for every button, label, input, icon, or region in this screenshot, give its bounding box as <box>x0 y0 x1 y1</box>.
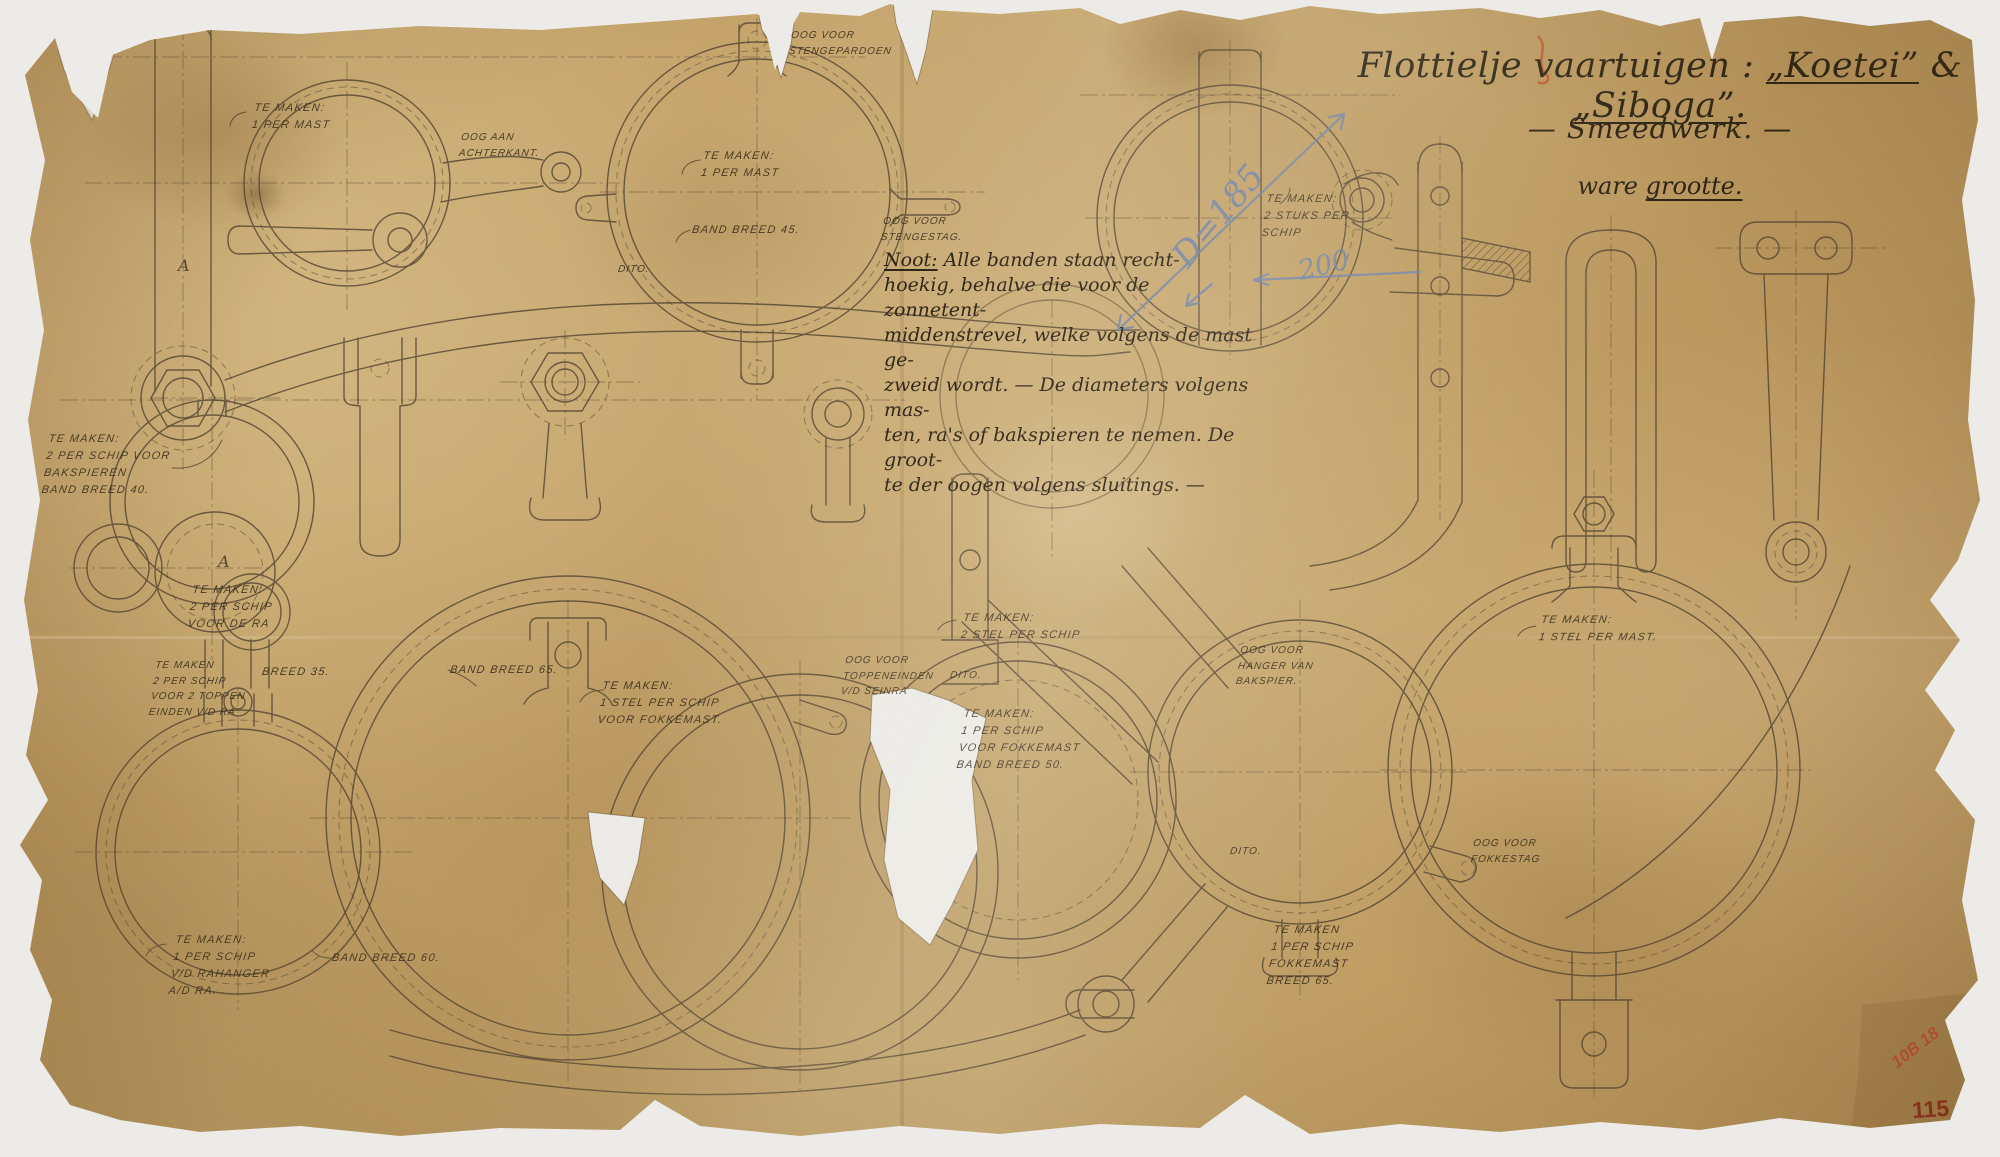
label-band40-make: TE MAKEN: 2 PER SCHIP VOOR BAKSPIEREN BA… <box>40 431 174 499</box>
note-line: hoekig, behalve die voor de zonnetent- <box>884 273 1252 323</box>
note-line: middenstrevel, welke volgens de mast ge- <box>884 323 1252 373</box>
note-line: te der oogen volgens sluitings. — <box>884 473 1252 498</box>
section-mark-a2: A <box>218 552 230 571</box>
title-joiner: & <box>1931 46 1963 86</box>
note-line: zweid wordt. — De diameters volgens mas- <box>884 373 1252 423</box>
label-ring2-make: TE MAKEN: 1 PER MAST <box>700 148 783 182</box>
drawing-scale-note: ware grootte. <box>1400 172 1920 200</box>
label-breed35: BREED 35. <box>261 664 331 681</box>
label-band60: BAND BREED 60. <box>331 950 441 967</box>
note-text: Alle banden staan recht- <box>938 249 1180 271</box>
label-ring2-pardoen: OOG VOOR STENGEPARDOEN <box>788 28 895 59</box>
label-fokke50-make: TE MAKEN: 1 PER SCHIP VOOR FOKKEMAST BAN… <box>955 706 1086 774</box>
blueprint-paper: Flottielje vaartuigen : „Koetei” & „Sibo… <box>0 0 2000 1157</box>
label-band65: BAND BREED 65. <box>449 662 559 679</box>
label-fokke-make: TE MAKEN: 1 STEL PER SCHIP VOOR FOKKEMAS… <box>596 678 728 729</box>
label-stelmast-make: TE MAKEN: 1 STEL PER MAST. <box>1538 612 1661 646</box>
label-ring2-stag: OOG VOOR STENGESTAG. <box>880 214 966 245</box>
ship-name-koetei: „Koetei” <box>1766 46 1919 86</box>
label-dito-mid: DITO. <box>949 668 983 684</box>
note-line: ten, ra's of bakspieren te nemen. De gro… <box>884 423 1252 473</box>
scale-bar <box>42 1141 1988 1144</box>
label-ring1-make: TE MAKEN: 1 PER MAST <box>251 100 334 134</box>
label-fokkestag-eye: OOG VOOR FOKKESTAG <box>1470 836 1544 867</box>
label-ring4-make: TE MAKEN: 2 STUKS PER SCHIP <box>1260 191 1353 242</box>
scale-prefix: ware <box>1577 172 1645 200</box>
title-prefix: Flottielje vaartuigen : <box>1358 46 1755 86</box>
section-mark-a1: A <box>178 256 190 275</box>
stamp-sheet-number: 115 <box>1911 1095 1950 1125</box>
label-ra-make: TE MAKEN: 2 PER SCHIP VOOR DE RA <box>186 582 276 633</box>
label-toppen-make: TE MAKEN 2 PER SCHIP VOOR 2 TOPPEN EINDE… <box>148 658 251 720</box>
note-heading: Noot: <box>884 249 938 271</box>
scanned-drawing-page: { "page": { "background_color": "#ecebe7… <box>0 0 2000 1157</box>
label-bakspier-hanger-eye: OOG VOOR HANGER VAN BAKSPIER. <box>1235 643 1317 690</box>
label-ring1-eye: OOG AAN ACHTERKANT. <box>458 130 543 161</box>
label-dito-bottom: DITO. <box>1229 844 1263 860</box>
label-ring2-band: BAND BREED 45. <box>691 222 801 239</box>
label-seinra-eye: OOG VOOR TOPPENEINDEN V/D SEINRA <box>840 653 937 700</box>
general-note: Noot: Alle banden staan recht- hoekig, b… <box>884 248 1252 498</box>
scale-word: grootte. <box>1646 172 1743 200</box>
label-rahanger-make: TE MAKEN: 1 PER SCHIP V/D RAHANGER A/D R… <box>167 932 276 1000</box>
label-fokke65-make: TE MAKEN 1 PER SCHIP FOKKEMAST BREED 65. <box>1265 922 1357 990</box>
label-stel2-make: TE MAKEN: 2 STEL PER SCHIP <box>960 610 1084 644</box>
label-ring2-dito: DITO. <box>617 262 651 278</box>
drawing-subtitle: — Smeedwerk. — <box>1360 112 1960 145</box>
